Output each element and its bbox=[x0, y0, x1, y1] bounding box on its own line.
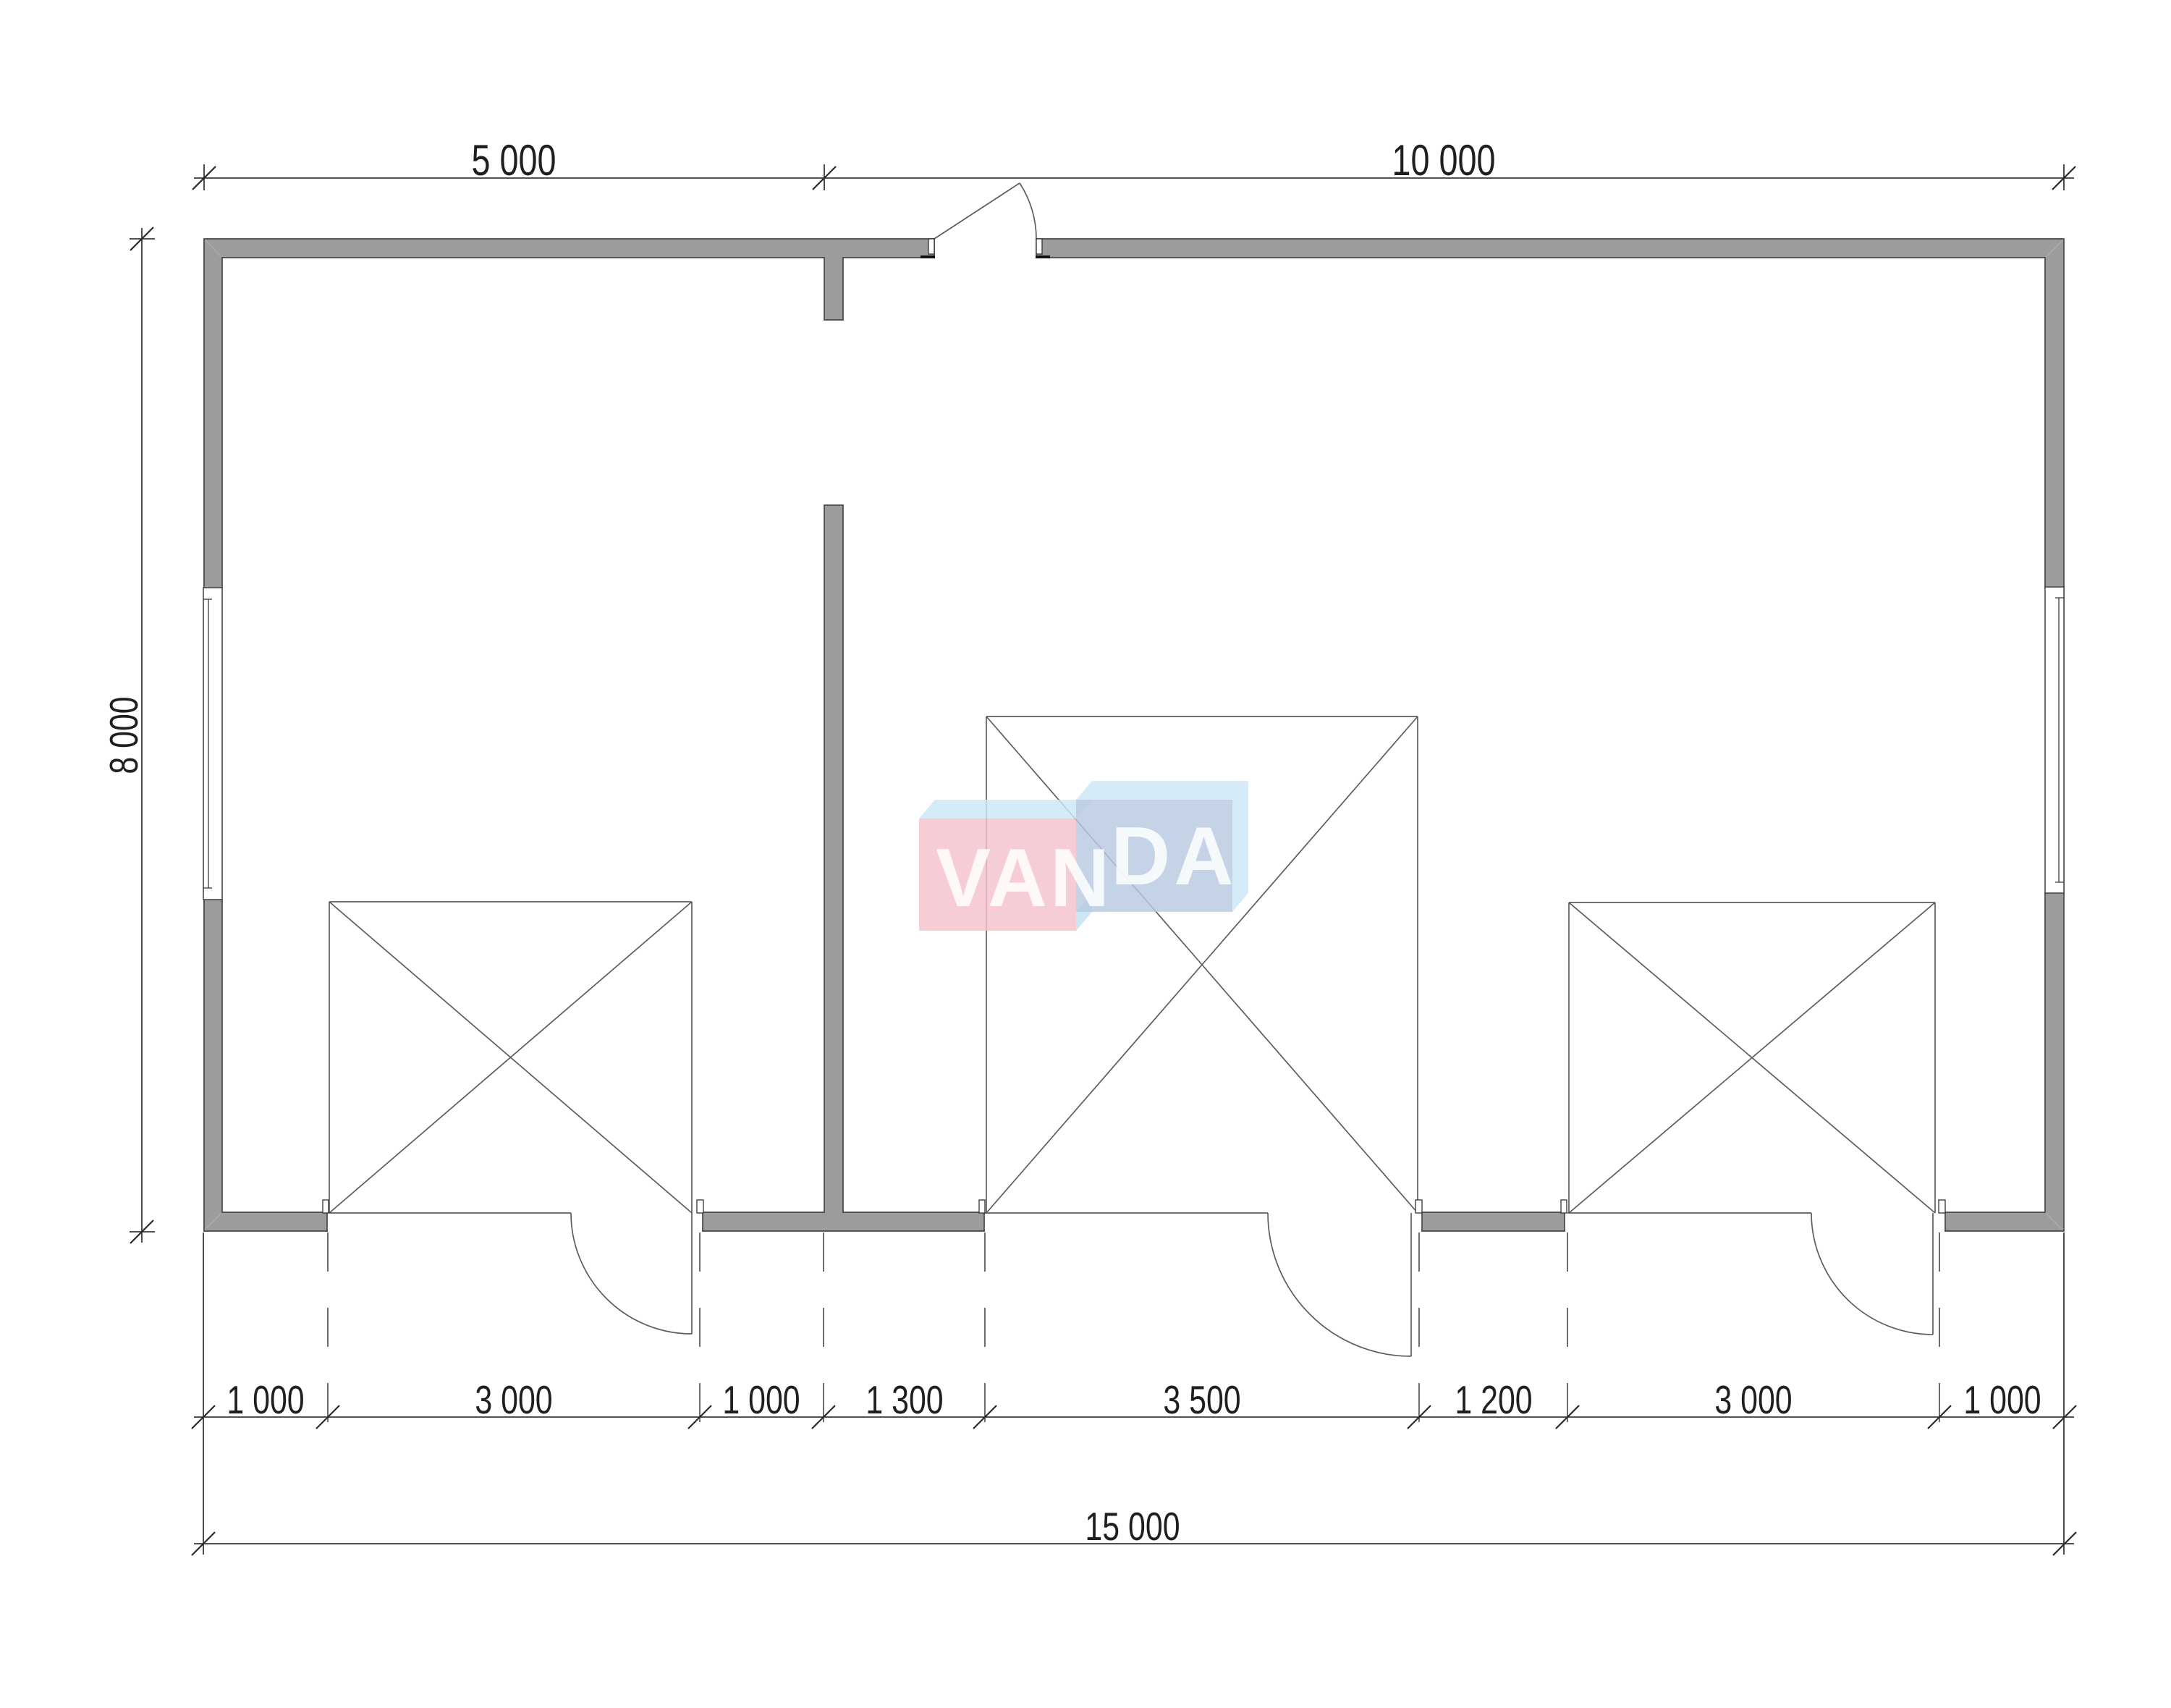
svg-text:8 000: 8 000 bbox=[102, 696, 146, 774]
svg-text:VAN: VAN bbox=[936, 832, 1112, 924]
svg-text:15 000: 15 000 bbox=[1085, 1505, 1180, 1549]
svg-text:1 000: 1 000 bbox=[722, 1378, 800, 1422]
svg-text:DA: DA bbox=[1111, 811, 1237, 902]
svg-text:3 000: 3 000 bbox=[1714, 1378, 1792, 1422]
svg-text:3 500: 3 500 bbox=[1163, 1378, 1240, 1422]
svg-text:10 000: 10 000 bbox=[1392, 136, 1495, 185]
svg-text:1 000: 1 000 bbox=[1963, 1378, 2041, 1422]
svg-text:3 000: 3 000 bbox=[475, 1378, 552, 1422]
svg-text:1 300: 1 300 bbox=[866, 1378, 943, 1422]
svg-text:5 000: 5 000 bbox=[471, 136, 556, 185]
svg-text:1 200: 1 200 bbox=[1455, 1378, 1532, 1422]
svg-text:1 000: 1 000 bbox=[227, 1378, 304, 1422]
